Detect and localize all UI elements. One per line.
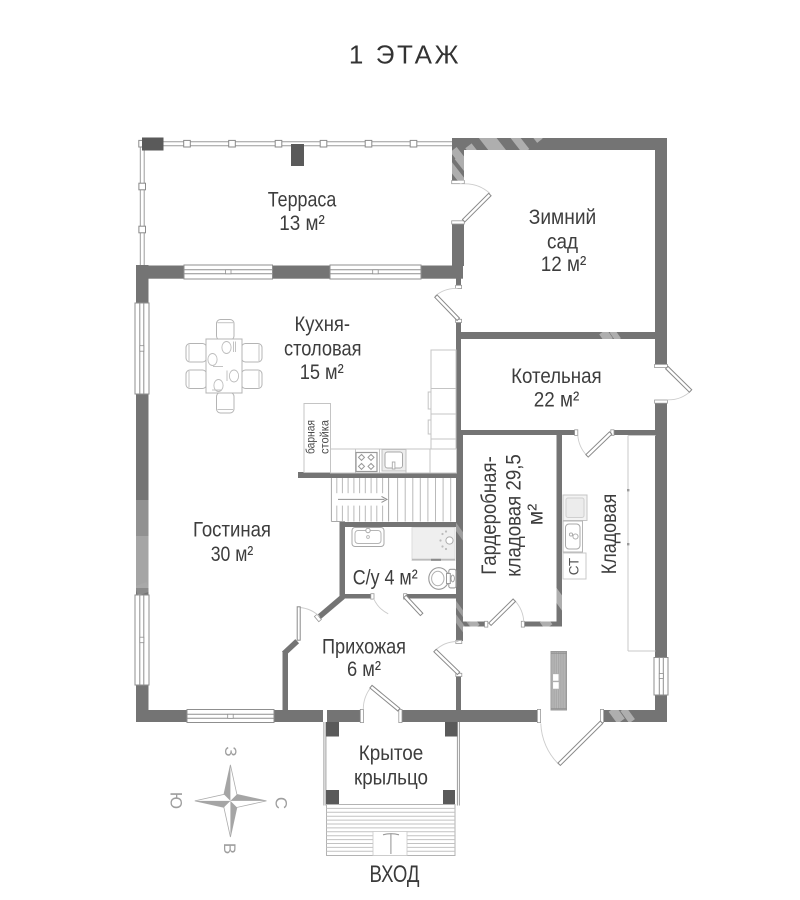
svg-text:12 м²: 12 м²: [541, 253, 587, 276]
svg-text:столовая: столовая: [284, 338, 362, 361]
svg-text:Гардеробная-: Гардеробная-: [478, 456, 501, 575]
svg-text:15 м²: 15 м²: [300, 361, 344, 384]
svg-text:30 м²: 30 м²: [211, 543, 254, 566]
svg-text:ВХОД: ВХОД: [370, 861, 420, 888]
svg-text:сад: сад: [547, 231, 578, 254]
svg-text:Кладовая: Кладовая: [598, 494, 621, 575]
svg-text:13 м²: 13 м²: [279, 212, 325, 235]
svg-text:Кухня-: Кухня-: [295, 313, 351, 336]
svg-text:м²: м²: [525, 504, 548, 525]
svg-text:СТ: СТ: [567, 558, 582, 576]
svg-text:кладовая 29,5: кладовая 29,5: [503, 454, 526, 577]
svg-text:С: С: [272, 797, 291, 809]
svg-text:Терраса: Терраса: [268, 189, 337, 212]
svg-text:В: В: [220, 843, 239, 854]
svg-text:барная: барная: [304, 420, 318, 454]
svg-text:Котельная: Котельная: [511, 365, 602, 388]
svg-text:Прихожая: Прихожая: [322, 636, 406, 659]
svg-text:С/у 4 м²: С/у 4 м²: [353, 567, 418, 590]
svg-text:Зимний: Зимний: [529, 206, 597, 229]
svg-text:22 м²: 22 м²: [534, 389, 580, 412]
svg-text:1 ЭТАЖ: 1 ЭТАЖ: [349, 40, 461, 70]
svg-text:Гостиная: Гостиная: [193, 519, 271, 542]
svg-text:6 м²: 6 м²: [347, 658, 381, 681]
svg-text:стойка: стойка: [318, 420, 332, 454]
svg-text:Крытое: Крытое: [359, 742, 424, 765]
svg-text:Ю: Ю: [167, 792, 186, 809]
svg-text:крыльцо: крыльцо: [354, 767, 428, 790]
svg-text:З: З: [221, 746, 240, 756]
